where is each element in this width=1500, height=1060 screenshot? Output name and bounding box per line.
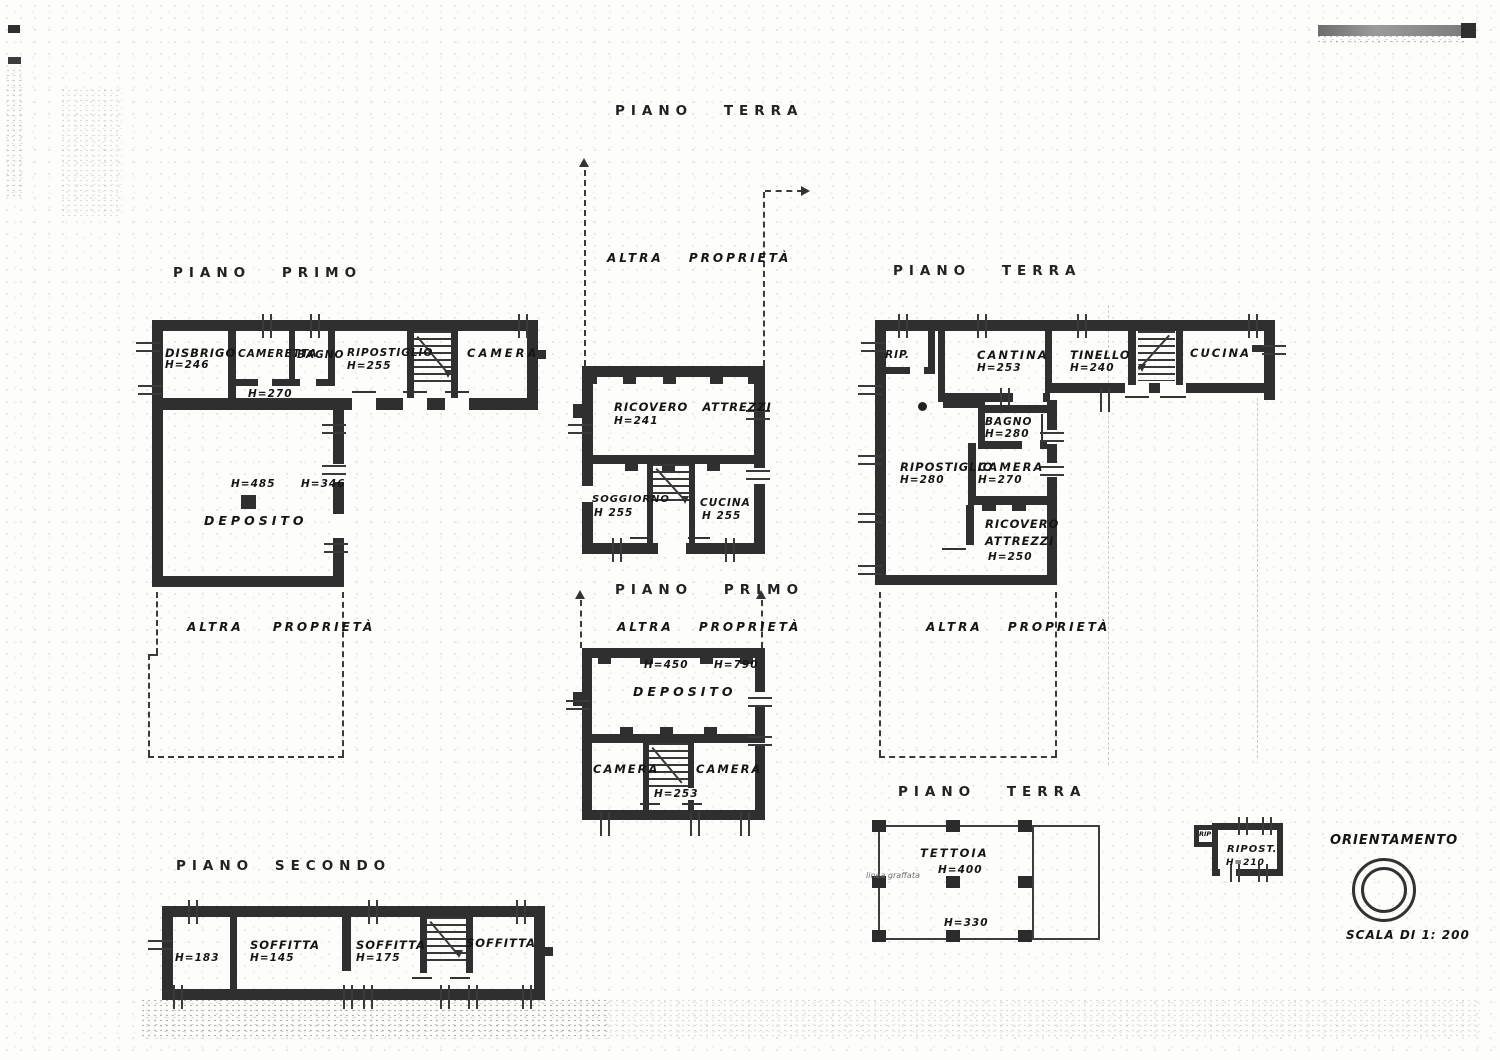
tick	[363, 985, 373, 1009]
tick	[858, 385, 882, 395]
room-height: H=240	[1070, 362, 1115, 374]
boundary-arrow	[579, 158, 589, 167]
tick	[898, 314, 908, 338]
tick	[468, 985, 478, 1009]
tick	[748, 697, 772, 707]
wall	[162, 906, 173, 1000]
property-boundary	[148, 654, 150, 756]
door-opening	[1022, 441, 1040, 449]
tick	[322, 465, 346, 475]
pillar	[872, 820, 886, 832]
partition-wall	[228, 331, 236, 398]
tick	[1077, 314, 1087, 338]
scan-fold-line	[1108, 305, 1109, 765]
well-mark	[918, 402, 927, 411]
room-height: H=330	[944, 917, 989, 929]
room-height: H=790	[714, 659, 759, 671]
scale-label: SCALA DI 1: 200	[1346, 928, 1470, 942]
tick	[612, 538, 622, 562]
room-height: H=270	[248, 388, 293, 400]
wall-tooth	[704, 727, 717, 734]
door-leaf	[1125, 396, 1149, 398]
room-height: H=210	[1226, 858, 1265, 868]
plan-title-center-first: PIANO PRIMO	[615, 582, 804, 598]
wall-tooth	[623, 377, 636, 384]
door-opening	[300, 379, 316, 386]
property-boundary	[879, 756, 1057, 758]
door-opening	[1013, 393, 1043, 402]
boundary-arrow	[756, 590, 766, 599]
door-leaf	[682, 803, 702, 805]
tick	[600, 812, 610, 836]
door-leaf	[445, 391, 469, 393]
staircase	[1138, 331, 1175, 381]
property-boundary	[342, 592, 344, 756]
property-boundary	[765, 190, 803, 192]
wall	[582, 455, 765, 464]
stairs-height: H=253	[652, 788, 701, 800]
stair-arrowhead	[1138, 364, 1146, 372]
room-height: H=270	[978, 474, 1023, 486]
room-height: H=346	[301, 478, 346, 490]
scan-fold-line	[1257, 398, 1258, 758]
plan-title-center-ground: PIANO TERRA	[615, 103, 804, 119]
tick	[977, 314, 987, 338]
tick	[568, 424, 592, 434]
scan-noise	[5, 68, 25, 198]
partition-wall	[966, 505, 974, 545]
partition-wall	[407, 331, 414, 398]
wall	[152, 398, 538, 410]
tick	[861, 342, 885, 352]
tick	[1100, 388, 1110, 412]
room-height: H=183	[175, 952, 220, 964]
partition-wall	[451, 331, 458, 398]
pillar	[241, 495, 256, 509]
room-height: H 255	[702, 510, 741, 522]
partition-wall	[230, 917, 237, 989]
tick	[725, 538, 735, 562]
property-boundary	[763, 192, 765, 366]
door-opening	[420, 973, 427, 989]
tick	[746, 470, 770, 480]
stair-arrowhead	[444, 370, 452, 378]
room-label: RIP.	[885, 349, 910, 361]
plan-title-left-second: PIANO SECONDO	[176, 858, 391, 874]
scan-noise	[60, 88, 122, 216]
pillar	[946, 820, 960, 832]
room-label: DISBRIGO	[165, 346, 236, 360]
room-label: RICOVERO ATTREZZI	[614, 400, 772, 414]
tick	[343, 985, 353, 1009]
tick	[1248, 314, 1258, 338]
room-height: H=255	[347, 360, 392, 372]
plan-title-right-ground: PIANO TERRA	[893, 263, 1082, 279]
tick	[310, 314, 320, 338]
room-height: H=175	[356, 952, 401, 964]
wall	[162, 989, 545, 1000]
door-leaf	[640, 803, 660, 805]
pillar	[1018, 876, 1032, 888]
orientation-label: ORIENTAMENTO	[1330, 833, 1458, 848]
pillar	[946, 930, 960, 942]
room-label: SOGGIORNO	[592, 494, 670, 505]
door-opening	[258, 379, 272, 386]
tick	[522, 985, 532, 1009]
pillar	[872, 930, 886, 942]
room-label: CUCINA	[700, 497, 751, 509]
door-opening	[910, 367, 924, 374]
wall	[1212, 823, 1218, 876]
room-height: H=400	[938, 864, 983, 876]
tick	[440, 985, 450, 1009]
room-height: H=241	[614, 415, 659, 427]
door-leaf	[450, 977, 470, 979]
other-property-label: ALTRA PROPRIETÀ	[187, 620, 375, 634]
room-label: CAMERA	[696, 762, 762, 776]
room-label: SOFFITTA	[250, 938, 320, 952]
property-boundary	[1055, 592, 1057, 756]
room-label: TETTOIA	[920, 846, 989, 860]
tick	[518, 314, 528, 338]
canopy-outline	[878, 938, 1100, 940]
tick	[1040, 432, 1064, 442]
room-height: H=250	[988, 551, 1033, 563]
tick	[173, 985, 183, 1009]
scan-blot	[8, 57, 21, 64]
partition-wall	[1176, 331, 1183, 385]
door-leaf	[942, 548, 966, 550]
room-label: RIPOSTIGLIO	[347, 347, 433, 359]
wall-tooth	[663, 377, 676, 384]
wall	[582, 734, 765, 743]
door-opening	[445, 398, 469, 410]
tick	[858, 455, 882, 465]
wall-tooth	[625, 464, 638, 471]
room-height: H=145	[250, 952, 295, 964]
wall	[875, 575, 1057, 585]
pillar	[946, 876, 960, 888]
room-label: DEPOSITO	[204, 513, 308, 528]
tick	[566, 700, 590, 710]
room-height: H=280	[985, 428, 1030, 440]
orientation-compass-inner	[1361, 867, 1407, 913]
wall	[1194, 842, 1214, 847]
partition-wall	[928, 331, 935, 371]
other-property-label: ALTRA PROPRIETÀ	[617, 620, 801, 634]
plan-title-tettoia: PIANO TERRA	[898, 784, 1087, 800]
scan-noise	[140, 998, 610, 1040]
scan-note: linea graffata	[866, 871, 920, 880]
tick	[516, 900, 526, 924]
room-height: H=450	[644, 659, 689, 671]
wall	[875, 320, 1275, 331]
wall	[152, 320, 163, 410]
door-leaf	[403, 391, 427, 393]
plan-title-left-first: PIANO PRIMO	[173, 265, 362, 281]
tick	[1238, 817, 1248, 835]
property-boundary	[580, 600, 582, 648]
other-property-label: ALTRA PROPRIETÀ	[607, 251, 791, 265]
tick	[188, 900, 198, 924]
room-height: H=485	[231, 478, 276, 490]
room-label: CAMERA	[593, 762, 659, 776]
wall-tooth	[710, 377, 723, 384]
room-label: CAMERA	[978, 460, 1044, 474]
property-boundary	[879, 592, 881, 756]
partition-wall	[938, 331, 945, 402]
wall	[152, 576, 344, 587]
tick	[748, 736, 772, 746]
canopy-outline	[1032, 825, 1034, 940]
partition-wall	[968, 496, 1054, 505]
room-label: TINELLO	[1070, 348, 1131, 362]
room-height: H=280	[900, 474, 945, 486]
property-boundary	[156, 592, 158, 654]
room-label: ATTREZZI	[985, 534, 1054, 548]
room-label: DEPOSITO	[633, 684, 737, 699]
wall	[534, 906, 545, 1000]
tick	[138, 385, 162, 395]
door-leaf	[412, 977, 432, 979]
wall	[152, 409, 163, 587]
room-label: RIP	[1199, 830, 1211, 838]
tick	[858, 565, 882, 575]
tick	[262, 314, 272, 338]
wall	[1047, 400, 1057, 577]
tick	[324, 543, 348, 553]
door-leaf	[352, 391, 376, 393]
tick	[1262, 345, 1286, 355]
canopy-outline	[1098, 825, 1100, 940]
window-opening	[333, 514, 344, 538]
tick	[322, 424, 346, 434]
wall-tooth	[707, 464, 720, 471]
wall-tooth	[598, 658, 611, 664]
boundary-arrow	[575, 590, 585, 599]
room-height: H=253	[977, 362, 1022, 374]
room-label: BAGNO	[297, 349, 344, 361]
stair-arrowhead	[455, 950, 463, 958]
partition-wall	[236, 379, 335, 386]
scan-noise	[1316, 34, 1466, 46]
door-opening	[658, 543, 686, 554]
tick	[148, 940, 172, 950]
scan-blot	[8, 25, 20, 33]
tick	[858, 513, 882, 523]
tick	[136, 342, 160, 352]
wall-tooth	[982, 505, 996, 511]
wall-tooth	[660, 727, 673, 734]
door-leaf	[1160, 396, 1186, 398]
partition-wall	[880, 367, 935, 374]
property-boundary	[584, 170, 586, 366]
wall	[152, 320, 538, 331]
canopy-outline	[878, 825, 1100, 827]
stair-arrowhead	[681, 496, 689, 504]
room-label: SOFFITTA	[356, 938, 426, 952]
scan-blot	[1461, 23, 1476, 38]
tick	[690, 812, 700, 836]
wall	[582, 648, 765, 658]
partition-wall	[1045, 331, 1052, 393]
wall	[527, 320, 538, 410]
door-leaf	[688, 537, 710, 539]
door-leaf	[630, 537, 652, 539]
wall-stub	[545, 947, 553, 956]
wall	[582, 366, 765, 377]
room-label: CUCINA	[1190, 346, 1251, 360]
room-label: CANTINA	[977, 348, 1049, 362]
wall-tooth	[700, 658, 713, 664]
stair-wall	[689, 464, 695, 543]
room-label: SOFFITTA	[466, 936, 536, 950]
boundary-arrow	[801, 186, 810, 196]
room-height: H=246	[165, 359, 210, 371]
wall	[162, 906, 545, 917]
wall-tooth	[620, 727, 633, 734]
door-opening	[403, 398, 427, 410]
door-opening	[352, 398, 376, 410]
room-label: BAGNO	[985, 416, 1032, 428]
room-label: RICOVERO	[985, 517, 1059, 531]
property-boundary	[148, 756, 344, 758]
pillar	[1018, 930, 1032, 942]
tick	[368, 900, 378, 924]
tick	[740, 812, 750, 836]
wall-stub	[573, 404, 582, 418]
room-label: CAMERA	[467, 346, 539, 360]
floor-plan-sheet: PIANO PRIMO PIANO TERRA PIANO TERRA PIAN…	[0, 0, 1500, 1060]
partition-wall	[978, 405, 1047, 413]
pillar	[1018, 820, 1032, 832]
wall-tooth	[1012, 505, 1026, 511]
room-height: H 255	[594, 507, 633, 519]
room-label: RIPOST.	[1227, 844, 1277, 855]
other-property-label: ALTRA PROPRIETÀ	[926, 620, 1110, 634]
tick	[1262, 817, 1272, 835]
